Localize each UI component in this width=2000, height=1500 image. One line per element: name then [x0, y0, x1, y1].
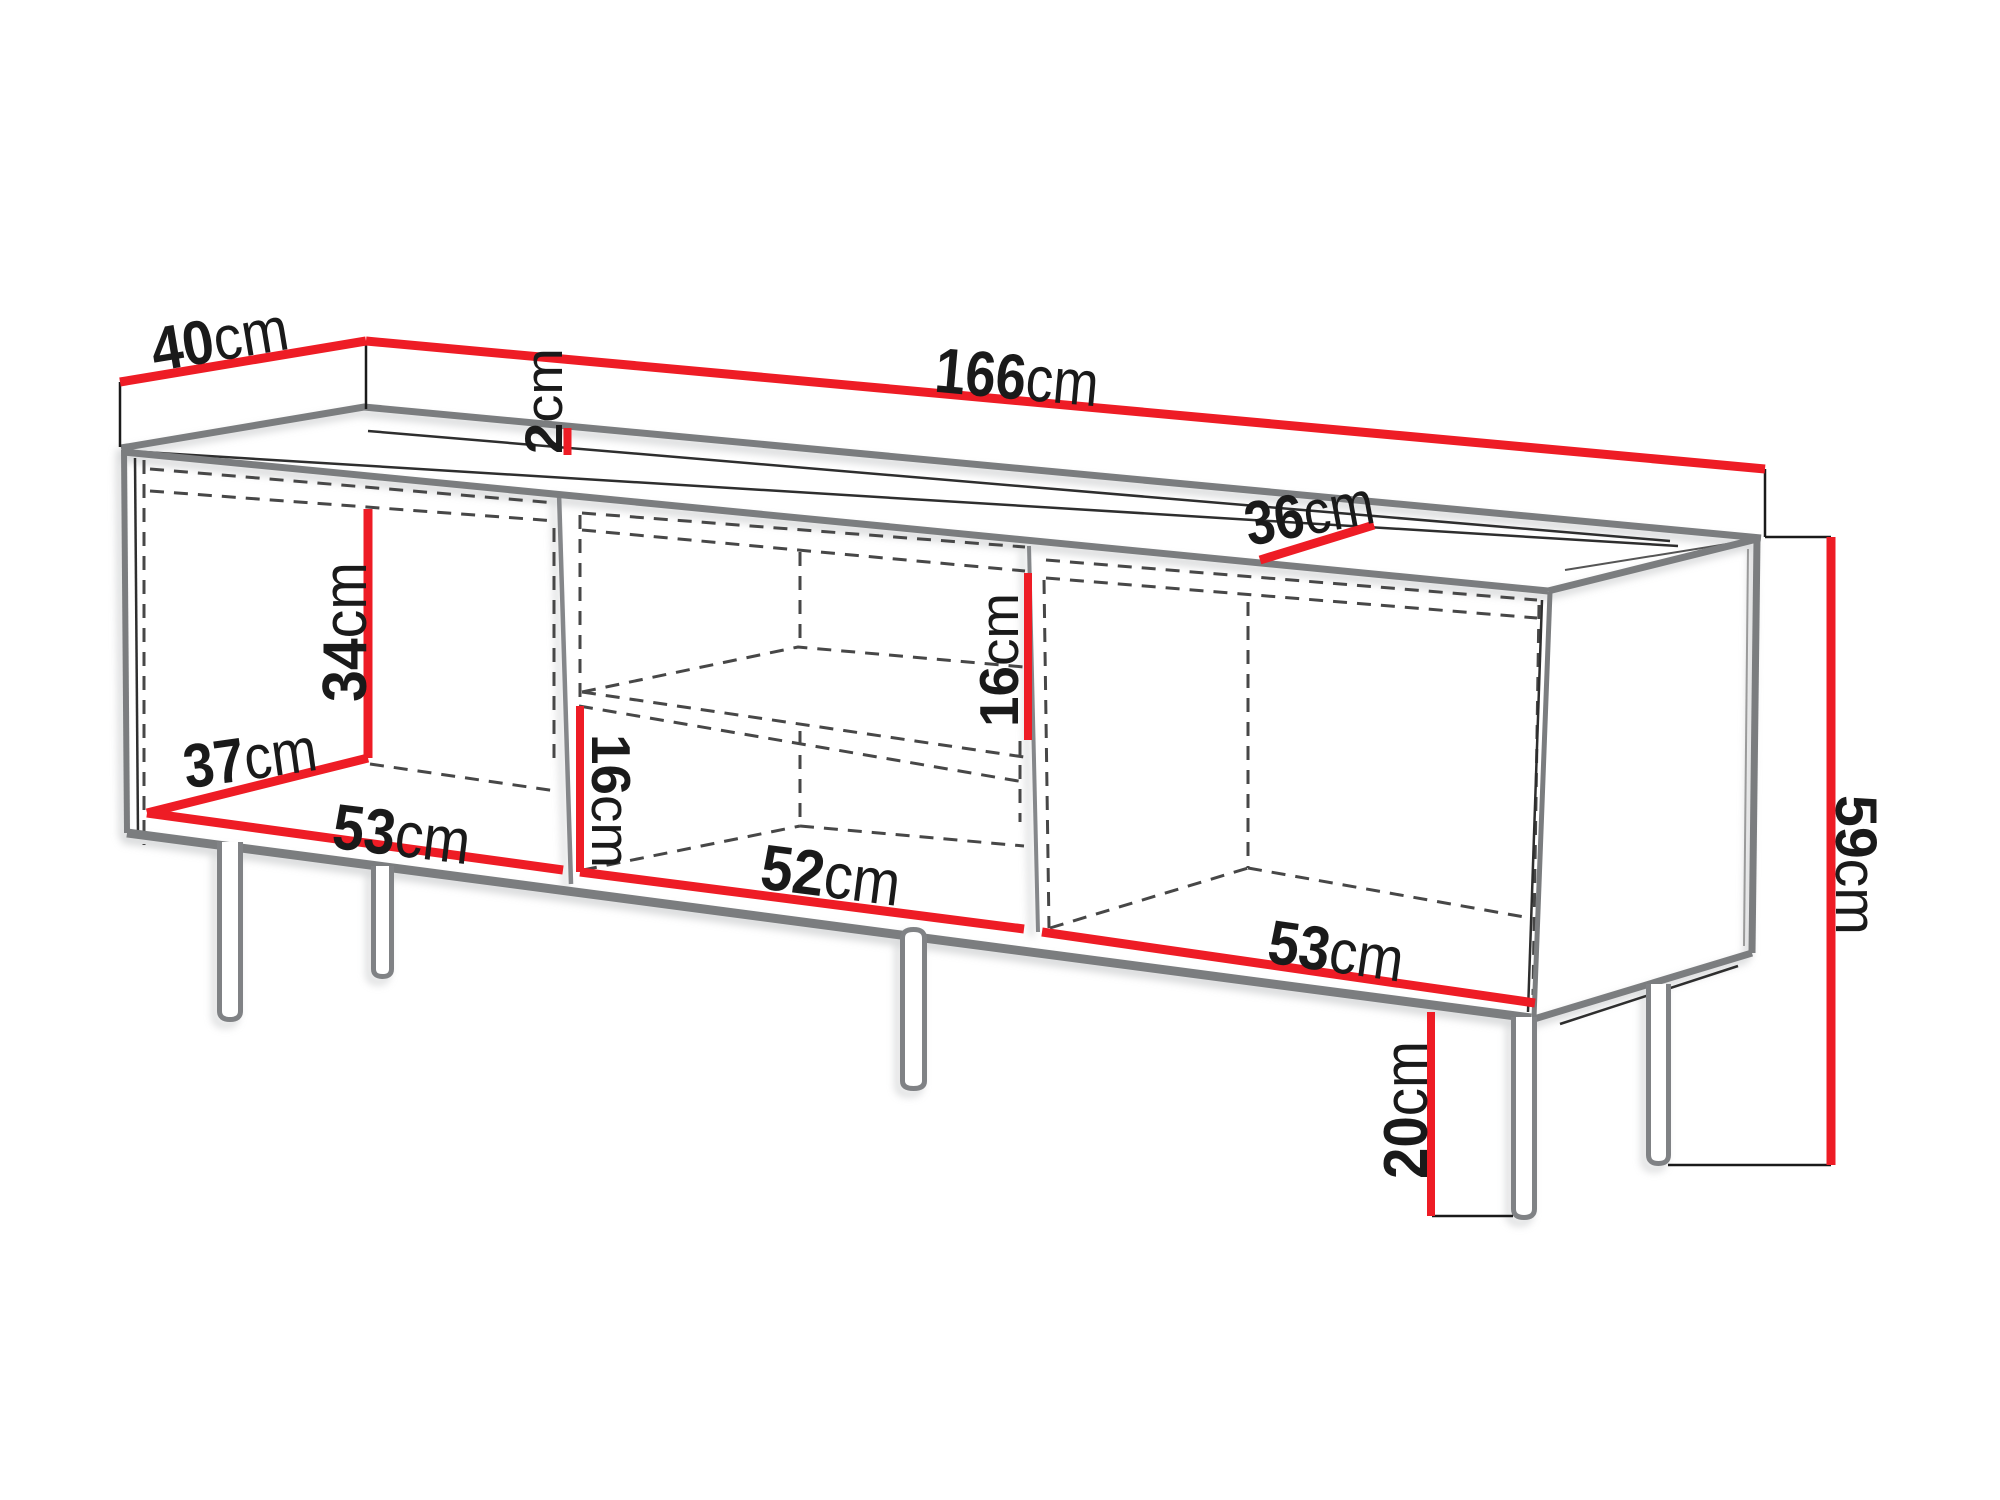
svg-text:166cm: 166cm: [932, 334, 1102, 421]
svg-text:34cm: 34cm: [311, 562, 380, 702]
svg-text:16cm: 16cm: [968, 593, 1030, 727]
svg-text:2cm: 2cm: [515, 348, 574, 454]
svg-text:59cm: 59cm: [1823, 795, 1888, 935]
svg-text:20cm: 20cm: [1372, 1041, 1441, 1179]
svg-text:37cm: 37cm: [179, 715, 321, 802]
svg-text:52cm: 52cm: [757, 831, 905, 920]
svg-text:16cm: 16cm: [580, 734, 642, 868]
svg-text:40cm: 40cm: [146, 294, 293, 385]
svg-text:36cm: 36cm: [1239, 468, 1379, 560]
